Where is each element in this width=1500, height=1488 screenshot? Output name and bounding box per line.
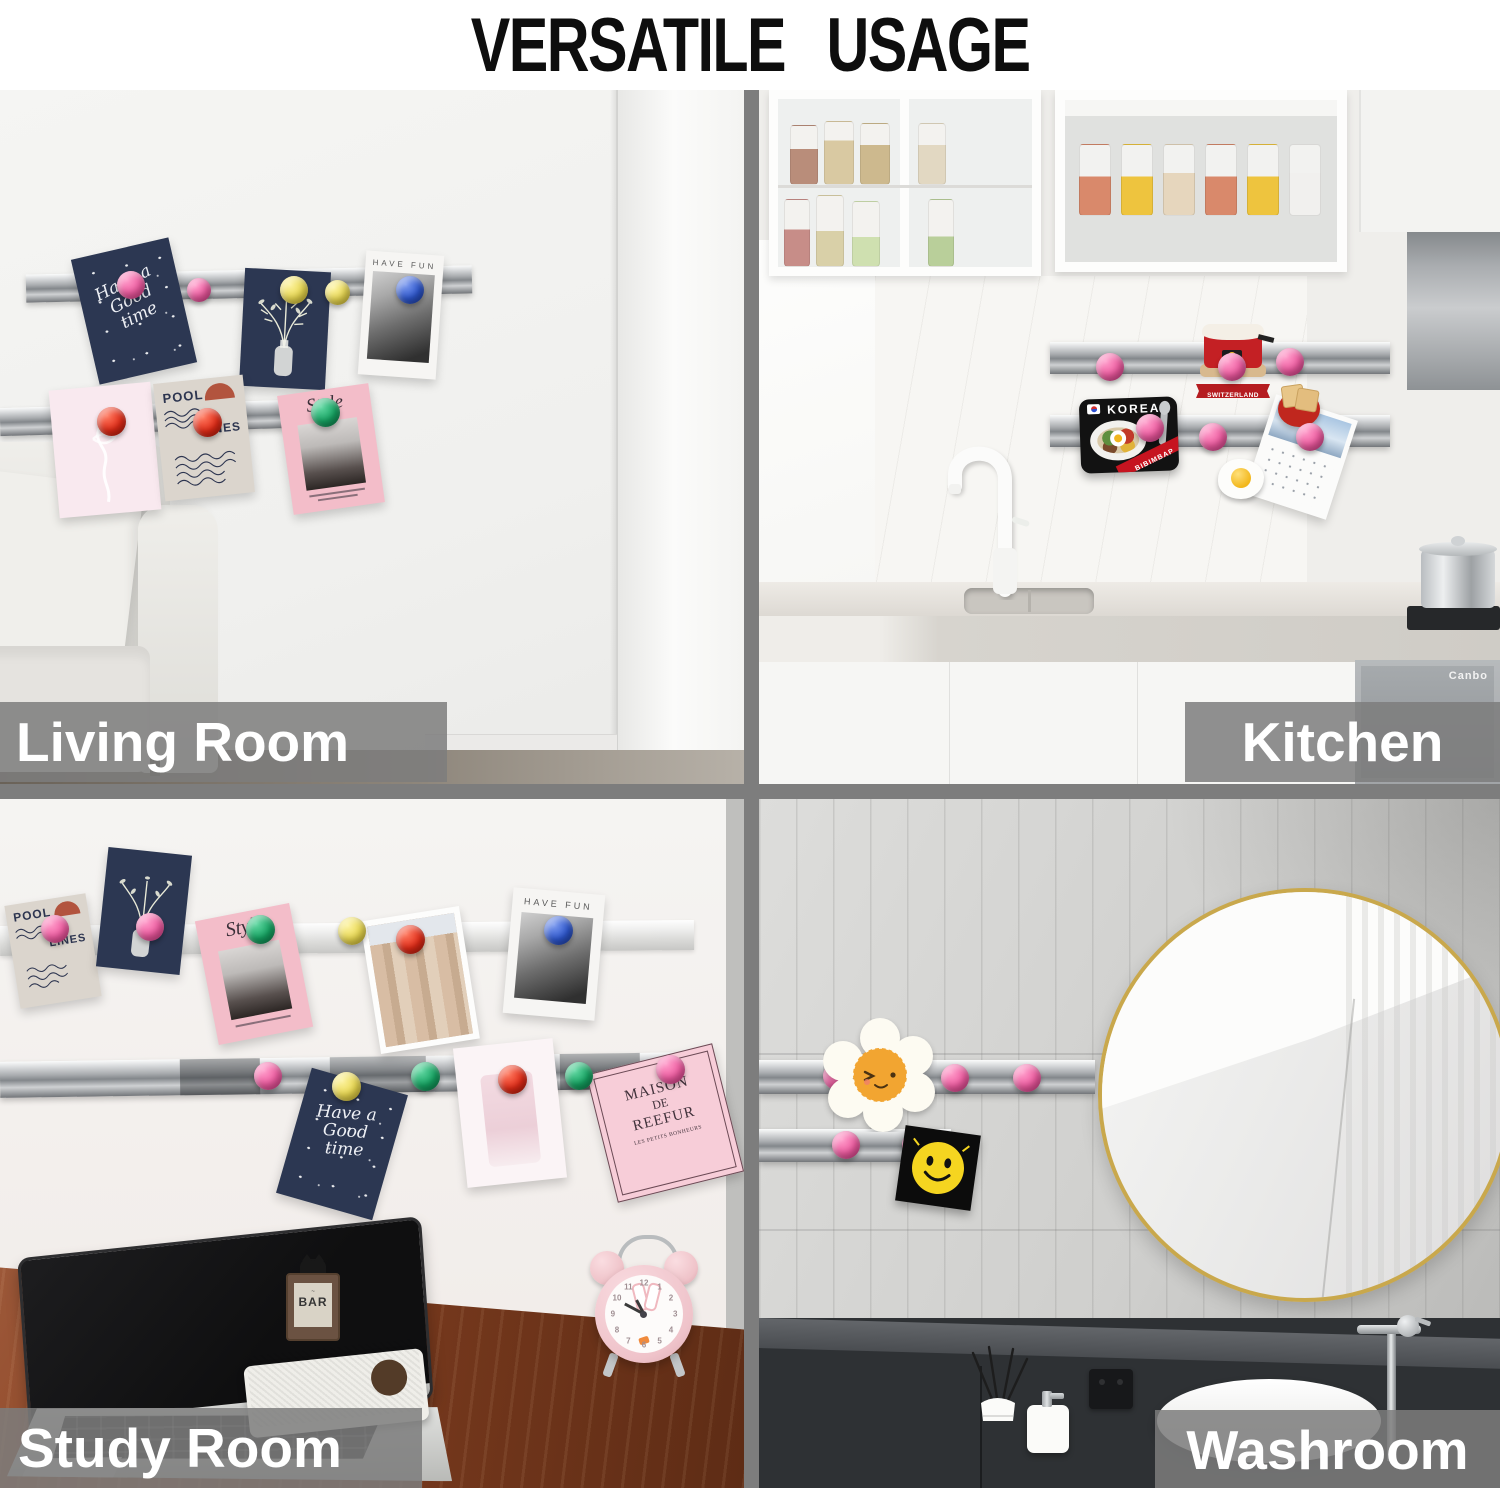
page-title: VERSATILE USAGE (471, 2, 1030, 89)
clock-leg (669, 1352, 686, 1378)
appliance-brand: Canbo (1449, 670, 1488, 682)
portrait-photo (218, 940, 292, 1021)
smiley-card-magnet (895, 1125, 981, 1211)
greeting-card: Have a Good time (71, 237, 197, 384)
kitchen-faucet (927, 420, 1047, 600)
curtain (616, 90, 744, 784)
green-magnet (565, 1062, 593, 1090)
glass-cabinet-left (769, 90, 1041, 276)
ribbon-doodle (49, 382, 162, 518)
cat-ear (314, 1254, 324, 1261)
pink-magnet (1199, 423, 1227, 451)
branch-illustration (96, 847, 192, 975)
mirror-curtain-reflection (1346, 892, 1500, 1298)
jar (784, 199, 810, 267)
switzerland-banner: SWITZERLAND (1196, 384, 1270, 398)
pink-magnet (187, 278, 211, 302)
sign-label: ~ BAR (294, 1283, 332, 1327)
red-magnet (396, 925, 425, 954)
wave-lines (153, 375, 255, 502)
soap-dispenser (1027, 1405, 1069, 1453)
yellow-magnet (280, 276, 308, 304)
sign-word: BAR (294, 1295, 332, 1309)
counter-edge (759, 616, 1500, 662)
clock-numeral: 9 (611, 1310, 615, 1319)
red-magnet (97, 407, 126, 436)
socket-hole (1099, 1379, 1105, 1385)
green-magnet (411, 1062, 440, 1091)
study-room-scene: POOL LINES (0, 799, 744, 1488)
clock-numeral: 5 (657, 1337, 661, 1346)
pot-body (1421, 550, 1495, 608)
clock-numeral: 3 (673, 1310, 677, 1319)
cheese-top (1202, 324, 1264, 340)
jar (918, 123, 946, 185)
green-magnet (311, 398, 340, 427)
clock-numeral: 7 (626, 1337, 630, 1346)
yellow-magnet (325, 280, 350, 305)
greeting-card-text: Have a Good time (294, 1102, 397, 1162)
clock-numeral: 4 (669, 1325, 673, 1334)
cabinet-seam (949, 662, 950, 784)
pink-magnet (1136, 414, 1164, 442)
jar (824, 121, 854, 185)
pink-magnet (136, 913, 164, 941)
have-fun-card: HAVE FUN (358, 250, 444, 379)
egg-magnet (1218, 459, 1264, 499)
clock-leg (602, 1352, 619, 1378)
cat-figurine (300, 1259, 326, 1273)
wall-corner-shadow (610, 90, 618, 784)
pink-magnet (1218, 353, 1246, 381)
dancer-card (453, 1038, 567, 1188)
green-magnet (246, 915, 275, 944)
daisy-flower-magnet (823, 1018, 937, 1132)
cabinet-rail (1065, 100, 1337, 116)
pink-magnet (1276, 348, 1304, 376)
kitchen-label: Kitchen (1185, 702, 1500, 782)
countertop (759, 582, 1500, 616)
cabinet-seam (1137, 662, 1138, 784)
pink-magnet (832, 1131, 860, 1159)
red-magnet (498, 1065, 527, 1094)
study-room-label: Study Room (0, 1408, 422, 1488)
flag-circle (1090, 406, 1096, 412)
glass-cabinet-right (1055, 90, 1347, 272)
spice-bottle (1079, 144, 1111, 216)
pink-magnet (254, 1062, 282, 1090)
korea-flag-icon (1087, 404, 1100, 414)
korea-bibimbap-magnet: KOREA BIBIMBAP (1079, 396, 1180, 473)
lid-knob (1451, 536, 1465, 546)
jar (852, 201, 880, 267)
strip-reflection (180, 1058, 260, 1095)
glass-shelf (778, 185, 1032, 188)
pool-lines-card: POOL LINES (4, 893, 101, 1009)
biscuit (1294, 387, 1319, 412)
spice-bottle (1163, 144, 1195, 216)
blue-magnet (544, 916, 573, 945)
sign-body: ~ BAR (286, 1273, 340, 1341)
cabinet-mullion (900, 99, 909, 267)
jar (860, 123, 890, 185)
yellow-magnet (338, 917, 366, 945)
clock-face: 121234567891011 (605, 1275, 683, 1353)
clock-numeral: 8 (615, 1325, 619, 1334)
socket-hole (1117, 1379, 1123, 1385)
clock-center-dot (640, 1311, 647, 1318)
pink-blank-card (49, 382, 162, 518)
alarm-clock: 121234567891011 (588, 1235, 700, 1383)
pink-magnet (1013, 1064, 1041, 1092)
bar-sign: ~ BAR (286, 1267, 340, 1341)
red-magnet (193, 408, 222, 437)
upper-cabinet (1359, 90, 1500, 232)
spice-bottle (1247, 144, 1279, 216)
pink-magnet (41, 915, 69, 943)
spice-bottle (1205, 144, 1237, 216)
product-collage: VERSATILE USAGE Have a Good time (0, 0, 1500, 1488)
portrait-photo (297, 417, 366, 491)
pink-magnet (656, 1055, 685, 1084)
range-hood (1407, 232, 1500, 390)
spice-bottle (1289, 144, 1321, 216)
clock-numeral: 10 (613, 1294, 622, 1303)
washroom-label: Washroom (1155, 1410, 1500, 1488)
have-fun-caption: HAVE FUN (365, 257, 443, 271)
botanical-card (96, 847, 192, 975)
washroom-scene: Washroom (759, 799, 1500, 1488)
living-room-label: Living Room (0, 702, 447, 782)
horizontal-divider (0, 784, 1500, 799)
clock-numeral: 6 (642, 1341, 646, 1350)
smiley-face (895, 1125, 981, 1211)
pump-spout (1050, 1393, 1064, 1399)
clock-numeral: 2 (669, 1294, 673, 1303)
have-fun-card: HAVE FUN (503, 887, 606, 1021)
pink-magnet (1296, 423, 1324, 451)
jar (928, 199, 954, 267)
spice-bottle (1121, 144, 1153, 216)
egg-yolk (1114, 434, 1122, 442)
pink-magnet (1096, 353, 1124, 381)
round-mirror (1098, 888, 1500, 1302)
clock-numeral: 11 (624, 1282, 632, 1291)
pink-magnet (117, 271, 145, 299)
pool-lines-card: POOL LINES (153, 375, 255, 502)
jar (790, 125, 818, 185)
biscuit-bowl-magnet (1278, 385, 1320, 427)
wall-socket (1089, 1369, 1133, 1409)
have-fun-caption: HAVE FUN (512, 895, 605, 913)
cat-ear (302, 1254, 312, 1261)
spoon-head (1159, 400, 1171, 415)
pink-magnet (941, 1064, 969, 1092)
blue-magnet (396, 276, 424, 304)
notebook-emblem (369, 1358, 409, 1398)
cooking-pot (1419, 536, 1497, 610)
clock-numeral: 12 (640, 1278, 649, 1287)
header: VERSATILE USAGE (0, 0, 1500, 90)
living-room-scene: Have a Good time (0, 90, 744, 784)
wave-lines (4, 893, 101, 1009)
kitchen-scene: SWITZERLAND KOREA BIBIMBAP (759, 90, 1500, 784)
clock-numeral: 1 (657, 1282, 661, 1291)
jar (816, 195, 844, 267)
yellow-magnet (332, 1072, 361, 1101)
egg-yolk (1231, 468, 1251, 488)
clock-body: 121234567891011 (595, 1265, 693, 1363)
greeting-card-text: Have a Good time (75, 254, 188, 347)
